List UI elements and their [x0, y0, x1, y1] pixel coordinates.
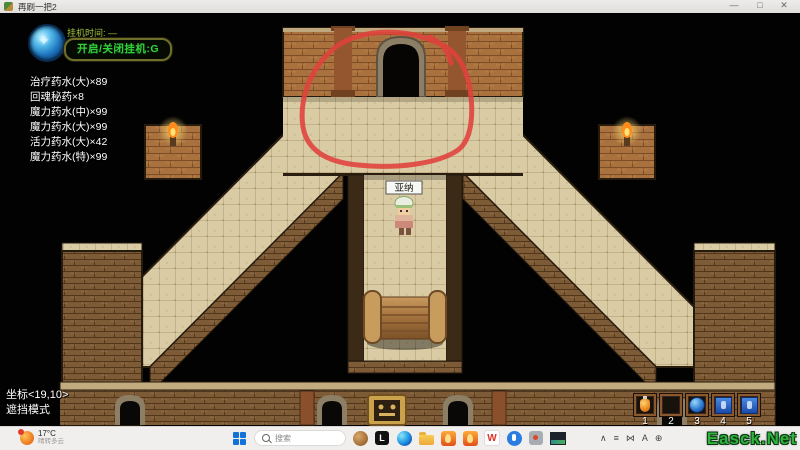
round-app-icon[interactable] — [352, 430, 368, 446]
hotbar-slot-4[interactable] — [712, 394, 734, 416]
hotbar-slot-3[interactable] — [686, 394, 708, 416]
weather-widget[interactable]: 17°C 晴转多云 — [20, 430, 64, 445]
window-titlebar[interactable]: 再刷一把2 — □ ✕ — [0, 0, 800, 14]
search-input[interactable]: 搜索 — [254, 430, 346, 446]
inventory-item: 治疗药水(大)×89 — [30, 75, 107, 90]
weather-icon — [20, 431, 34, 445]
game-map: 亚纳 — [0, 13, 800, 427]
search-icon — [262, 434, 270, 442]
weather-desc: 晴转多云 — [38, 438, 64, 445]
hotbar-slot-2[interactable] — [660, 394, 682, 416]
hotbar: 1 2 3 4 5 — [633, 394, 761, 427]
inventory-item: 魔力药水(中)×99 — [30, 105, 107, 120]
upper-right-torch-wall — [599, 116, 655, 179]
bowtie-indicator-icon[interactable]: ⋈ — [626, 431, 635, 446]
screenshot-tile-icon[interactable] — [550, 430, 566, 446]
idle-toggle-button[interactable]: 开启/关闭挂机:G — [64, 38, 172, 61]
taskbar-app-icons: L W — [352, 430, 566, 446]
edge-browser-icon[interactable] — [396, 430, 412, 446]
game-flame-icon-1[interactable] — [440, 430, 456, 446]
start-button[interactable] — [233, 432, 246, 445]
lines-indicator-icon[interactable]: ≡ — [614, 431, 619, 446]
maximize-button[interactable]: □ — [750, 0, 770, 10]
hotbar-slot-1[interactable] — [634, 394, 656, 416]
chevron-up-icon[interactable]: ∧ — [600, 431, 607, 446]
hotbar-slot-5[interactable] — [738, 394, 760, 416]
globe-icon[interactable]: ⊕ — [655, 431, 663, 446]
hotbar-slot-5-number: 5 — [746, 416, 752, 427]
hotbar-slot-3-number: 3 — [694, 416, 700, 427]
desktop-screen: 再刷一把2 — □ ✕ — [0, 0, 800, 450]
gate-arch-door — [443, 395, 473, 425]
inventory-item: 魔力药水(大)×99 — [30, 120, 107, 135]
system-tray: ∧ ≡ ⋈ A ⊕ — [600, 431, 662, 446]
search-placeholder: 搜索 — [275, 433, 291, 444]
inventory-list: 治疗药水(大)×89 回魂秘药×8 魔力药水(中)×99 魔力药水(大)×99 … — [30, 75, 107, 165]
blue-scroll-icon — [715, 397, 732, 414]
player-nameplate: 亚纳 — [386, 181, 422, 194]
wooden-roller — [364, 291, 446, 350]
window-title: 再刷一把2 — [18, 1, 57, 13]
coordinate-readout: 坐标<19,10> 遮挡模式 — [6, 388, 68, 418]
file-explorer-icon[interactable] — [418, 430, 434, 446]
hotbar-slot-4-number: 4 — [720, 416, 726, 427]
game-flame-icon-2[interactable] — [462, 430, 478, 446]
blue-orb-potion-icon — [689, 397, 705, 413]
game-viewport[interactable]: 亚纳 挂机时间: — 开启/关闭挂机:G 治疗药水(大)×89 回魂秘药×8 魔… — [0, 13, 800, 427]
minimize-button[interactable]: — — [724, 0, 744, 10]
inventory-item: 魔力药水(特)×99 — [30, 150, 107, 165]
watermark: Easck.Net — [707, 429, 797, 449]
gate-arch-door — [115, 395, 145, 425]
windows-taskbar: 17°C 晴转多云 搜索 L W ∧ ≡ ⋈ A ⊕ — [0, 426, 800, 450]
idle-clock-icon[interactable] — [28, 24, 66, 62]
voice-app-icon[interactable] — [506, 430, 522, 446]
mode-label: 遮挡模式 — [6, 403, 68, 418]
game-app-icon — [4, 2, 13, 11]
l-app-icon[interactable]: L — [374, 430, 390, 446]
ime-a-icon[interactable]: A — [642, 431, 648, 446]
gate-emblem — [368, 395, 406, 425]
hotbar-slot-2-number: 2 — [668, 416, 674, 427]
inventory-item: 回魂秘药×8 — [30, 90, 107, 105]
gate-arch-door — [317, 395, 347, 425]
player-name: 亚纳 — [394, 182, 413, 194]
orange-potion-icon — [640, 399, 650, 412]
blue-scroll-icon — [741, 397, 758, 414]
close-button[interactable]: ✕ — [774, 0, 794, 11]
weather-temp: 17°C — [38, 430, 64, 438]
circled-arch-door[interactable] — [377, 37, 425, 97]
hotbar-slot-1-number: 1 — [642, 416, 648, 427]
coordinates-label: 坐标<19,10> — [6, 388, 68, 403]
upper-left-torch-wall — [145, 116, 201, 179]
settings-app-icon[interactable] — [528, 430, 544, 446]
inventory-item: 活力药水(大)×42 — [30, 135, 107, 150]
wps-icon[interactable]: W — [484, 430, 500, 446]
